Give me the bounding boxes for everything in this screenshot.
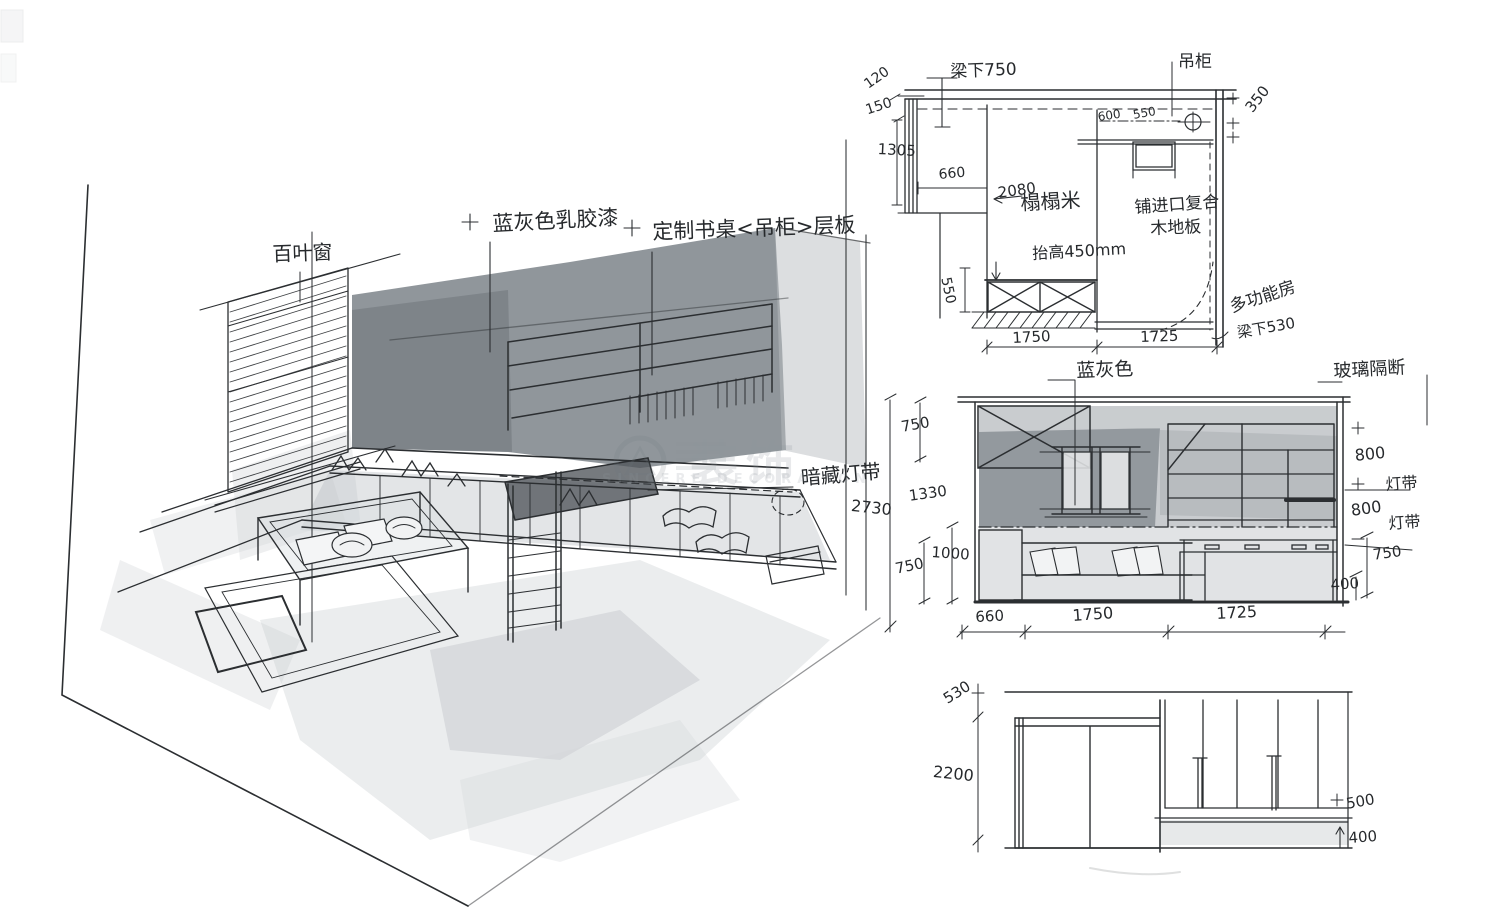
elev-label-glass: 玻璃隔断: [1333, 359, 1406, 381]
perspective-washes: [100, 228, 866, 862]
belev-dim-2200: 2200: [932, 764, 974, 784]
elev-dim-1750: 1750: [1072, 605, 1114, 624]
plan-dim-550-cab: 550: [1132, 105, 1157, 121]
belev-dim-400: 400: [1348, 829, 1378, 846]
plan-dim-1750: 1750: [1012, 329, 1051, 346]
sliding-door: [1015, 700, 1160, 852]
elev-dim-1725: 1725: [1216, 604, 1258, 622]
elev-dim-400-right: 400: [1330, 576, 1360, 593]
elev-dim-750-right: 750: [1372, 544, 1402, 563]
plan-label-tatami: 榻榻米: [1020, 190, 1081, 213]
wardrobe-panels: [1165, 700, 1348, 810]
label-blinds: 百叶窗: [272, 242, 333, 264]
plan-dim-660: 660: [938, 166, 966, 182]
watermark-en: SINCERE DECORATION: [602, 472, 872, 487]
plan-label-cabinet: 吊柜: [1178, 54, 1212, 71]
interior-design-sketch: 百叶窗 蓝灰色乳胶漆 定制书桌<吊柜>层板 暗藏灯带 梁下750 吊柜 120 …: [0, 0, 1504, 918]
elev-dim-1000: 1000: [931, 545, 970, 563]
elev-label-strip-a: 灯带: [1385, 475, 1418, 493]
plan-bench: [985, 262, 1097, 312]
plan-hanging-cabinet: [1078, 62, 1213, 144]
elev-dim-800-top: 800: [1354, 445, 1386, 464]
elev-label-strip-b: 灯带: [1388, 514, 1421, 532]
plan-dim-600: 600: [1097, 108, 1121, 123]
scan-artifacts: [1, 10, 23, 82]
plan-dim-1725: 1725: [1140, 329, 1179, 345]
plan-label-floor2: 木地板: [1150, 219, 1202, 238]
plan-dim-1305: 1305: [877, 142, 916, 159]
elev-dim-660: 660: [975, 609, 1004, 625]
plan-hatch: [972, 312, 1095, 328]
plan-label-beam: 梁下750: [950, 62, 1017, 81]
elev-label-paint: 蓝灰色: [1076, 360, 1134, 381]
elev-dim-2730: 2730: [850, 498, 892, 518]
elevation-bottom: [972, 684, 1352, 874]
elev-dim-800-bottom: 800: [1350, 499, 1382, 519]
